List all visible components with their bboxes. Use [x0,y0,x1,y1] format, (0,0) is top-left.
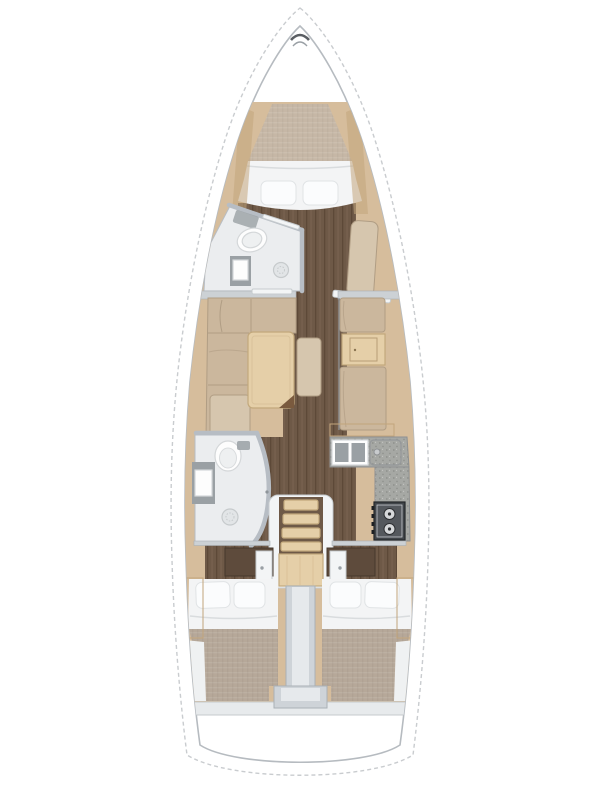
pillow [196,581,231,608]
starboard-dinette [339,298,386,430]
faucet-icon [374,449,380,455]
vberth-sheet-band [244,161,356,179]
stair-tread [284,500,318,510]
sink-icon [233,260,248,280]
aft-head [192,433,269,546]
stair-base-panel [279,554,323,586]
companionway-stairs [269,495,333,588]
center-seat [297,338,321,396]
floorplan-stage [0,0,600,800]
stair-tread [281,542,321,551]
forward-cabin [232,104,368,214]
pillow [365,581,400,608]
pillow [234,582,265,608]
aft-cabin-starboard [322,578,417,701]
stove-icon [372,502,406,540]
saloon-table [248,332,294,408]
aft-cabin-port [183,578,278,701]
pillow [261,181,296,205]
sink-icon [195,470,212,496]
shower-drain-icon [274,263,289,278]
pillow [330,582,361,608]
vberth-foot-bedding [238,179,362,210]
stair-tread [282,528,320,538]
forward-bench [346,220,378,297]
dinette-seat-aft [340,367,386,430]
shower-drain-icon [222,509,238,525]
pillow [303,181,338,205]
yacht-floorplan [0,0,600,800]
dinette-table [342,334,385,365]
stair-tread [283,514,319,524]
dinette-seat-forward [340,298,385,332]
